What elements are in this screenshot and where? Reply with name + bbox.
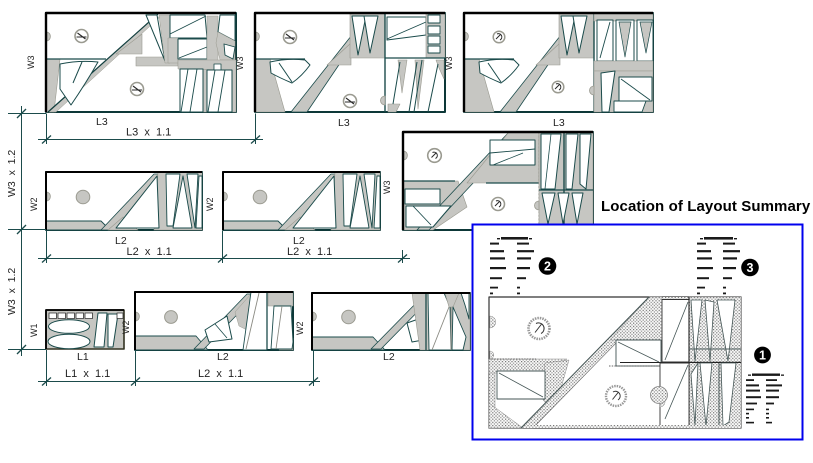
svg-text:2: 2 bbox=[544, 260, 551, 274]
svg-text:L3: L3 bbox=[338, 117, 350, 129]
svg-text:L2 x 1.1: L2 x 1.1 bbox=[127, 246, 172, 258]
svg-text:W2: W2 bbox=[295, 322, 305, 336]
svg-text:W3: W3 bbox=[444, 57, 454, 71]
svg-text:W2: W2 bbox=[121, 321, 131, 335]
svg-text:L3: L3 bbox=[96, 116, 108, 128]
svg-text:W3: W3 bbox=[382, 181, 392, 195]
svg-text:W3 x 1.2: W3 x 1.2 bbox=[6, 150, 18, 197]
svg-text:W3: W3 bbox=[235, 57, 245, 71]
svg-text:3: 3 bbox=[747, 261, 754, 275]
svg-text:W2: W2 bbox=[29, 198, 39, 212]
svg-text:1: 1 bbox=[759, 349, 766, 363]
svg-text:L1: L1 bbox=[77, 351, 89, 363]
svg-text:L3: L3 bbox=[553, 117, 565, 129]
svg-text:W3 x 1.2: W3 x 1.2 bbox=[6, 268, 18, 315]
svg-text:L2: L2 bbox=[217, 351, 229, 363]
svg-text:L1 x 1.1: L1 x 1.1 bbox=[65, 368, 110, 380]
svg-text:L2 x 1.1: L2 x 1.1 bbox=[287, 246, 332, 258]
svg-text:L2 x 1.1: L2 x 1.1 bbox=[198, 368, 243, 380]
svg-text:L2: L2 bbox=[383, 351, 395, 363]
svg-text:L3 x 1.1: L3 x 1.1 bbox=[126, 127, 171, 139]
svg-text:W1: W1 bbox=[29, 324, 39, 338]
svg-text:W2: W2 bbox=[205, 198, 215, 212]
svg-text:Location of Layout Summary: Location of Layout Summary bbox=[601, 198, 811, 215]
svg-text:L2: L2 bbox=[115, 235, 127, 247]
svg-text:W3: W3 bbox=[26, 56, 36, 70]
